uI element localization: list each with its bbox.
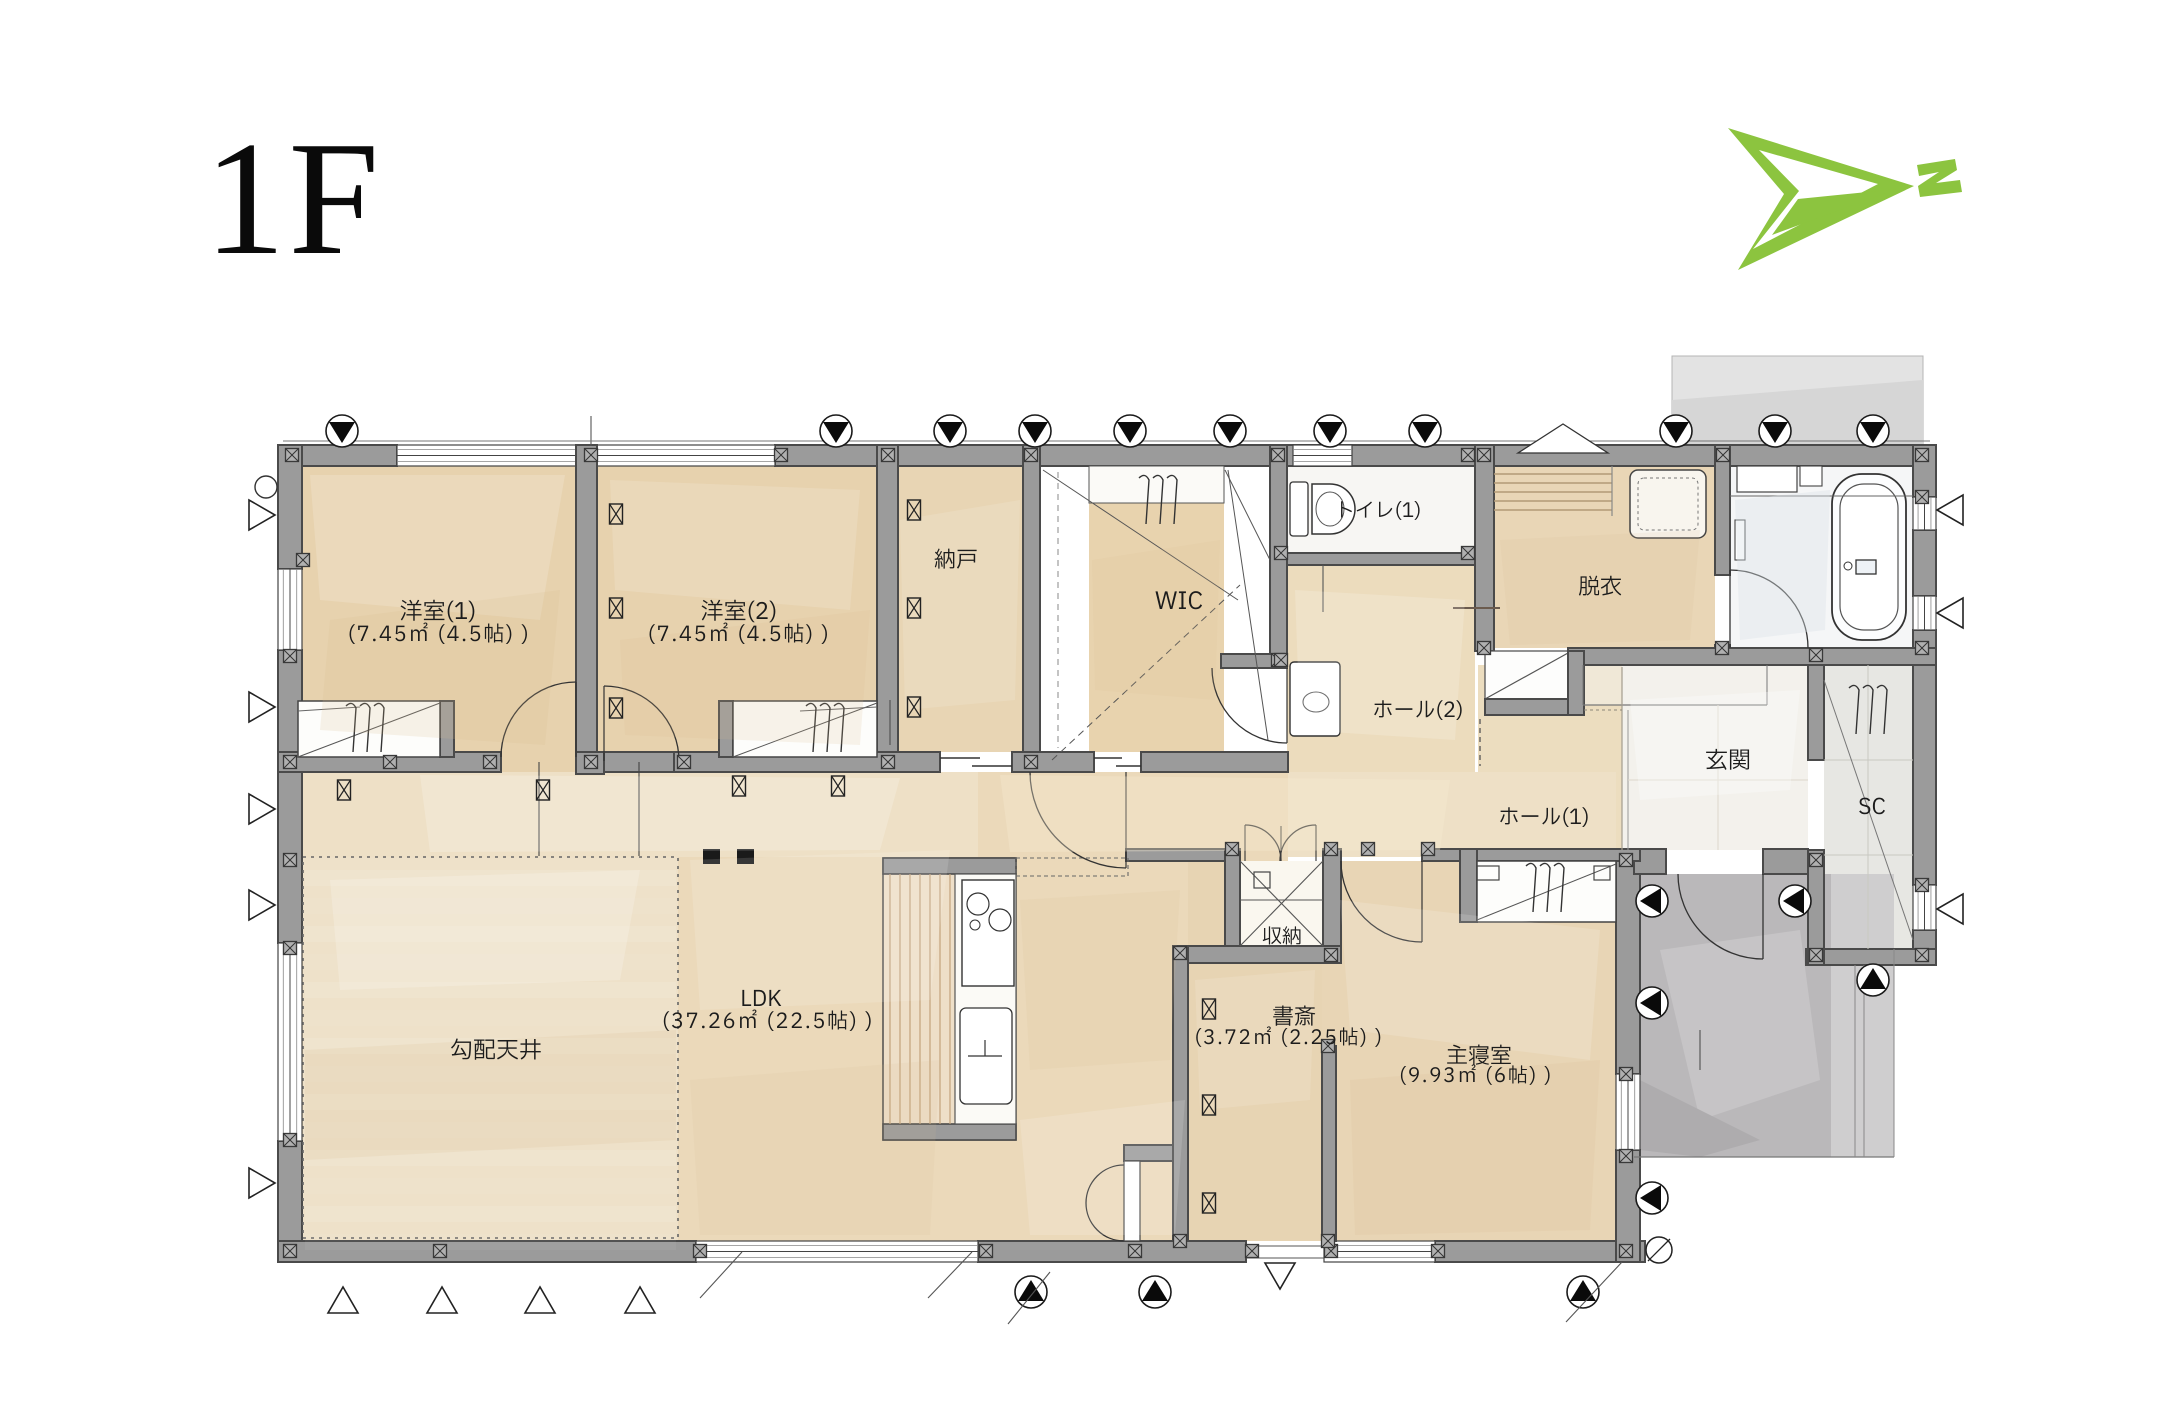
svg-text:1F: 1F bbox=[204, 109, 382, 289]
